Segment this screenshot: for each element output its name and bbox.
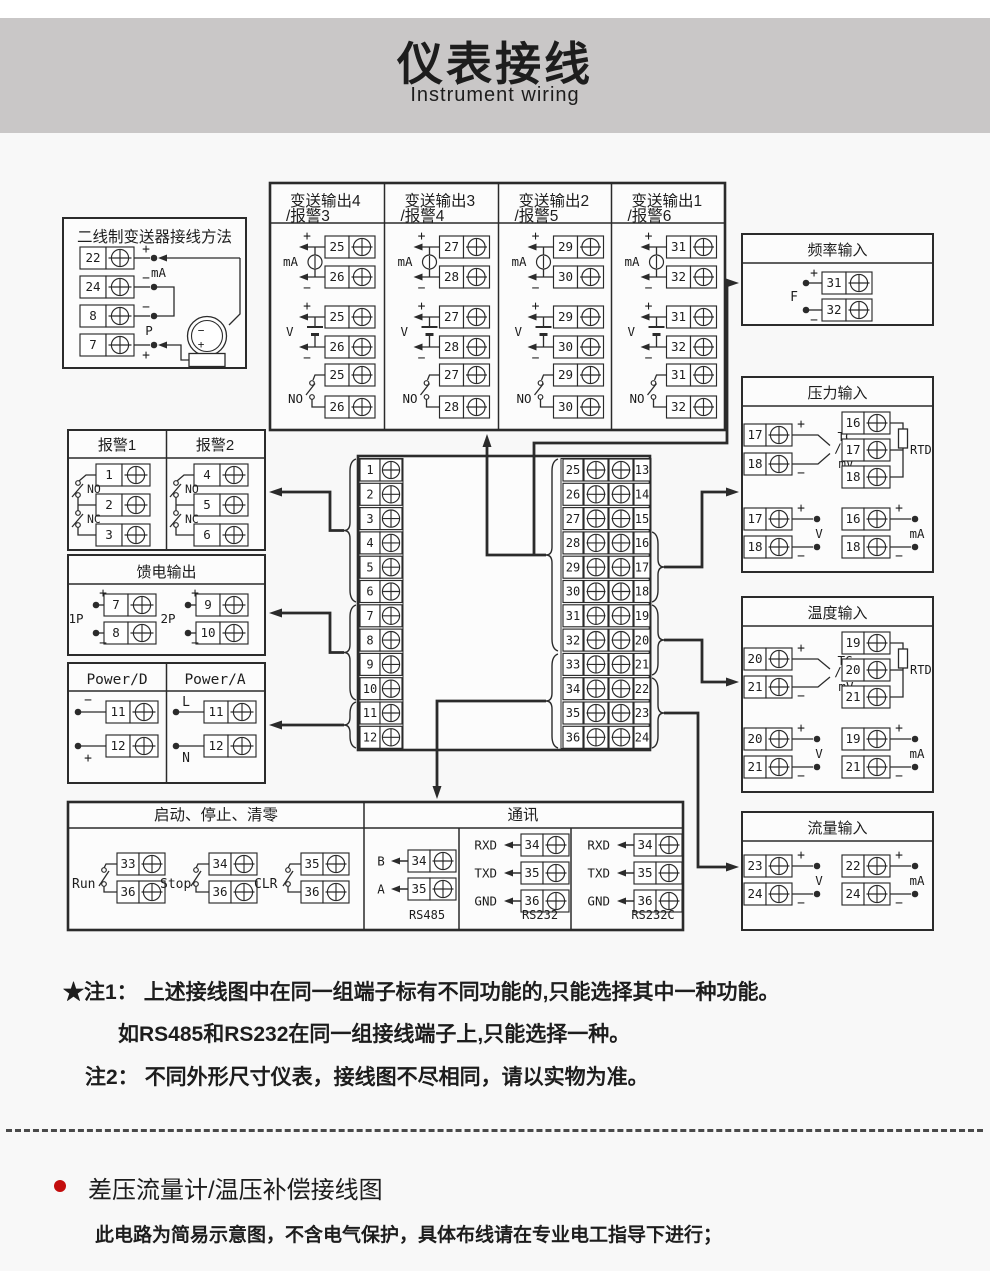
terminal-number: 28 (444, 399, 459, 414)
screw-terminal-icon (380, 629, 402, 651)
label: − (198, 324, 205, 337)
screw-terminal-icon (584, 556, 608, 578)
terminal-number: 30 (558, 269, 573, 284)
label: − (418, 281, 426, 296)
terminal-number: 6 (366, 585, 373, 599)
terminal-number: 7 (366, 609, 373, 623)
screw-terminal-icon (584, 605, 608, 627)
terminal-number: 20 (747, 731, 762, 746)
screw-terminal-icon (609, 483, 633, 505)
label: − (895, 549, 903, 564)
label: RS232C (631, 908, 674, 922)
terminal-number: 25 (329, 239, 344, 254)
screw-terminal-icon (609, 508, 633, 530)
screw-terminal-icon (864, 439, 890, 461)
terminal-number: 12 (363, 731, 377, 745)
screw-terminal-icon (349, 266, 375, 288)
label: NO (517, 391, 532, 406)
terminal-number: 18 (845, 469, 860, 484)
terminal-number: 31 (566, 609, 580, 623)
label: + (797, 721, 805, 736)
label: Stop (160, 877, 191, 892)
terminal-number: 36 (212, 884, 227, 899)
terminal-number: 5 (366, 560, 373, 574)
terminal-number: 17 (747, 511, 762, 526)
screw-terminal-icon (380, 483, 402, 505)
label: RS485 (409, 908, 445, 922)
center-terminal-block: 1251322614327154281652917630187311983220… (358, 456, 651, 750)
screw-terminal-icon (543, 862, 569, 884)
screw-terminal-icon (220, 464, 248, 486)
label: V (401, 324, 409, 339)
label: mA (909, 746, 925, 761)
screw-terminal-icon (691, 396, 717, 418)
screw-terminal-icon (609, 459, 633, 481)
screw-terminal-icon (543, 834, 569, 856)
label: Run (72, 877, 95, 892)
terminal-number: 7 (112, 597, 120, 612)
terminal-number: 26 (329, 399, 344, 414)
terminal-number: 32 (671, 339, 686, 354)
terminal-number: 36 (120, 884, 135, 899)
terminal-number: 2 (366, 488, 373, 502)
terminal-number: 10 (200, 625, 215, 640)
screw-terminal-icon (380, 678, 402, 700)
terminal-number: 34 (637, 837, 652, 852)
terminal-number: 26 (329, 339, 344, 354)
screw-terminal-icon (380, 581, 402, 603)
screw-terminal-icon (430, 878, 456, 900)
box-title: 通讯 (507, 806, 538, 824)
screw-terminal-icon (766, 883, 792, 905)
screw-terminal-icon (864, 466, 890, 488)
screw-terminal-icon (766, 424, 792, 446)
screw-terminal-icon (464, 336, 490, 358)
screw-terminal-icon (584, 508, 608, 530)
note-1-text-2: 如RS485和RS232在同一组接线端子上,只能选择一种。 (118, 1023, 630, 1046)
label: − (810, 313, 818, 328)
group-brace (652, 605, 664, 675)
label: + (418, 299, 426, 314)
arrow-head-icon (433, 786, 442, 799)
label: + (645, 299, 653, 314)
label: − (895, 896, 903, 911)
terminal-number: 25 (329, 367, 344, 382)
label: − (303, 281, 311, 296)
terminal-number: 24 (635, 731, 649, 745)
terminal-number: 21 (845, 759, 860, 774)
label: NO (288, 391, 303, 406)
temperature-input-box: 温度输入2021+−TC/mV192021RTD2021+−V1921+−mA (742, 597, 933, 792)
screw-terminal-icon (864, 756, 890, 778)
box-title: 压力输入 (807, 385, 867, 402)
terminal-number: 11 (110, 704, 125, 719)
terminal-number: 20 (635, 633, 649, 647)
terminal-number: 21 (747, 759, 762, 774)
screw-terminal-icon (380, 605, 402, 627)
terminal-number: 28 (444, 269, 459, 284)
screw-terminal-icon (349, 364, 375, 386)
terminal-number: 27 (444, 239, 459, 254)
label: V (628, 324, 636, 339)
label: GND (587, 894, 610, 909)
terminal-number: 28 (444, 339, 459, 354)
terminal-number: 34 (566, 682, 580, 696)
screw-terminal-icon (766, 453, 792, 475)
terminal-number: 36 (524, 893, 539, 908)
label: + (191, 586, 199, 601)
arrow-head-icon (726, 863, 739, 872)
screw-terminal-icon (864, 508, 890, 530)
label: B (377, 854, 385, 869)
screw-terminal-icon (609, 678, 633, 700)
label: + (532, 299, 540, 314)
label: + (797, 417, 805, 432)
terminal-number: 32 (671, 399, 686, 414)
terminal-number: 24 (845, 886, 860, 901)
label: F (790, 290, 798, 305)
screw-terminal-icon (609, 581, 633, 603)
label: + (895, 848, 903, 863)
label: TXD (587, 866, 610, 881)
frequency-input-box: 频率输入3132+−F (742, 234, 933, 328)
label: V (515, 324, 523, 339)
terminal-number: 20 (747, 651, 762, 666)
terminal-number: 35 (304, 856, 319, 871)
arrow-head-icon (269, 721, 282, 730)
terminal-number: 29 (558, 309, 573, 324)
group-brace (344, 702, 356, 748)
label: CLR (254, 877, 278, 892)
terminal-number: 3 (105, 527, 113, 542)
label: + (645, 229, 653, 244)
screw-terminal-icon (864, 883, 890, 905)
screw-terminal-icon (691, 364, 717, 386)
screw-terminal-icon (766, 855, 792, 877)
terminal-number: 16 (845, 511, 860, 526)
terminal-number: 9 (366, 658, 373, 672)
label: − (895, 769, 903, 784)
screw-terminal-icon (584, 678, 608, 700)
label: / (834, 441, 842, 456)
screw-terminal-icon (584, 483, 608, 505)
terminal-number: 2 (105, 497, 113, 512)
terminal-number: 14 (635, 488, 649, 502)
box-title: 报警2 (196, 437, 234, 454)
screw-terminal-icon (656, 862, 682, 884)
screw-terminal-icon (323, 881, 349, 903)
label: mA (151, 265, 167, 280)
arrow-head-icon (483, 434, 492, 447)
label: mA (909, 873, 925, 888)
label: N (182, 751, 190, 766)
screw-terminal-icon (578, 306, 604, 328)
terminal-number: 9 (204, 597, 212, 612)
flow-input-box: 流量输入2324+−V2224+−mA (742, 812, 933, 930)
alarm-box: 报警1报警2123NONC456NONC (68, 430, 265, 550)
label: + (797, 641, 805, 656)
label: − (418, 351, 426, 366)
screw-terminal-icon (578, 236, 604, 258)
label: RXD (587, 838, 610, 853)
column-title: /报警6 (628, 207, 672, 225)
screw-terminal-icon (220, 494, 248, 516)
screw-terminal-icon (380, 653, 402, 675)
terminal-number: 21 (635, 658, 649, 672)
terminal-number: 31 (671, 367, 686, 382)
screw-terminal-icon (766, 508, 792, 530)
screw-terminal-icon (380, 702, 402, 724)
power-box: Power/DPower/A1112−+1112LN (68, 663, 265, 783)
screw-terminal-icon (846, 272, 872, 294)
arrow-head-icon (269, 609, 282, 618)
screw-terminal-icon (349, 236, 375, 258)
terminal-number: 6 (203, 527, 211, 542)
screw-terminal-icon (656, 834, 682, 856)
screw-terminal-icon (609, 629, 633, 651)
terminal-number: 13 (635, 463, 649, 477)
box-title: 频率输入 (807, 242, 867, 259)
label: V (815, 526, 823, 541)
label: V (286, 324, 294, 339)
screw-terminal-icon (464, 364, 490, 386)
label: mA (512, 254, 528, 269)
box-title: Power/D (86, 672, 147, 688)
screw-terminal-icon (349, 396, 375, 418)
label: P (145, 323, 153, 338)
note-1-line-2: 如RS485和RS232在同一组接线端子上,只能选择一种。 (118, 1018, 630, 1048)
label: NO (87, 482, 101, 496)
screw-terminal-icon (691, 266, 717, 288)
screw-terminal-icon (584, 653, 608, 675)
terminal-number: 24 (85, 279, 100, 294)
label: − (532, 281, 540, 296)
terminal-number: 21 (845, 689, 860, 704)
terminal-number: 1 (105, 467, 113, 482)
screw-terminal-icon (864, 536, 890, 558)
screw-terminal-icon (864, 412, 890, 434)
note-1-head: ★注1： (63, 981, 138, 1004)
label: + (84, 751, 92, 766)
terminal-number: 32 (671, 269, 686, 284)
terminal-number: 30 (558, 399, 573, 414)
terminal-number: 25 (566, 463, 580, 477)
label: + (198, 338, 205, 351)
terminal-number: 29 (566, 560, 580, 574)
screw-terminal-icon (609, 726, 633, 748)
label: + (895, 721, 903, 736)
screw-terminal-icon (464, 266, 490, 288)
terminal-number: 31 (826, 275, 841, 290)
screw-terminal-icon (122, 524, 150, 546)
screw-terminal-icon (864, 728, 890, 750)
group-brace (344, 605, 356, 700)
box-title: Power/A (184, 672, 245, 688)
column-title: /报警3 (286, 207, 330, 225)
screw-terminal-icon (578, 364, 604, 386)
label: V (815, 746, 823, 761)
terminal-number: 3 (366, 512, 373, 526)
terminal-number: 36 (637, 893, 652, 908)
label: − (191, 636, 199, 651)
terminal-number: 26 (566, 488, 580, 502)
transmitter-icon: −+ (188, 317, 227, 367)
terminal-number: 33 (120, 856, 135, 871)
label: + (142, 242, 150, 257)
screw-terminal-icon (609, 653, 633, 675)
terminal-number: 18 (845, 539, 860, 554)
terminal-number: 32 (826, 302, 841, 317)
label: + (99, 586, 107, 601)
terminal-number: 22 (85, 250, 100, 265)
terminal-number: 19 (845, 731, 860, 746)
terminal-number: 32 (566, 633, 580, 647)
label: mA (283, 254, 299, 269)
two-wire-transmitter-box: 二线制变送器接线方法222487+mA−−P+−+ (63, 218, 246, 368)
screw-terminal-icon (323, 853, 349, 875)
terminal-number: 11 (363, 706, 377, 720)
screw-terminal-icon (609, 702, 633, 724)
label: RS232 (522, 908, 558, 922)
label: − (797, 689, 805, 704)
screw-terminal-icon (130, 735, 158, 757)
terminal-number: 28 (566, 536, 580, 550)
screw-terminal-icon (464, 236, 490, 258)
screw-terminal-icon (766, 676, 792, 698)
terminal-number: 17 (747, 427, 762, 442)
terminal-number: 19 (845, 635, 860, 650)
terminal-number: 8 (366, 633, 373, 647)
terminal-number: 26 (329, 269, 344, 284)
terminal-number: 27 (566, 512, 580, 526)
box-title: 启动、停止、清零 (154, 806, 279, 824)
note-2-line: 注2：不同外形尺寸仪表，接线图不尽相同，请以实物为准。 (85, 1061, 649, 1091)
label: / (834, 664, 842, 679)
label: − (645, 281, 653, 296)
label: − (797, 896, 805, 911)
label: + (810, 266, 818, 281)
screw-terminal-icon (584, 532, 608, 554)
terminal-number: 23 (747, 858, 762, 873)
label: − (797, 466, 805, 481)
screw-terminal-icon (228, 701, 256, 723)
label: NO (630, 391, 645, 406)
label: RXD (474, 838, 497, 853)
terminal-number: 34 (524, 837, 539, 852)
terminal-number: 27 (444, 367, 459, 382)
label: + (303, 299, 311, 314)
terminal-number: 18 (747, 456, 762, 471)
terminal-number: 17 (635, 560, 649, 574)
label: − (84, 693, 92, 708)
screw-terminal-icon (766, 756, 792, 778)
terminal-number: 8 (112, 625, 120, 640)
screw-terminal-icon (766, 536, 792, 558)
screw-terminal-icon (864, 659, 890, 681)
screw-terminal-icon (766, 728, 792, 750)
note-2-text: 不同外形尺寸仪表，接线图不尽相同，请以实物为准。 (145, 1066, 649, 1089)
screw-terminal-icon (380, 726, 402, 748)
screw-terminal-icon (220, 594, 248, 616)
screw-terminal-icon (349, 336, 375, 358)
arrow-head-icon (726, 279, 739, 288)
terminal-number: 18 (747, 539, 762, 554)
box-title: 报警1 (98, 437, 136, 454)
screw-terminal-icon (464, 396, 490, 418)
screw-terminal-icon (864, 632, 890, 654)
page: 仪表接线 Instrument wiring 二线制变送器接线方法222487+… (0, 0, 990, 1271)
terminal-number: 19 (635, 609, 649, 623)
terminal-number: 4 (366, 536, 373, 550)
label: 2P (160, 611, 175, 626)
label: + (532, 229, 540, 244)
screw-terminal-icon (609, 532, 633, 554)
label: mA (398, 254, 414, 269)
terminal-number: 10 (363, 682, 377, 696)
screw-terminal-icon (231, 853, 257, 875)
pressure-input-box: 压力输入1718+−TC/mV161718RTD1718+−V1618+−mA (742, 377, 933, 572)
label: RTD (910, 663, 932, 677)
terminal-number: 34 (411, 853, 426, 868)
screw-terminal-icon (578, 266, 604, 288)
screw-terminal-icon (349, 306, 375, 328)
note-1-line-1: ★注1：上述接线图中在同一组端子标有不同功能的,只能选择其中一种功能。 (63, 976, 780, 1006)
label: + (303, 229, 311, 244)
label: NC (87, 512, 101, 526)
note-1-text: 上述接线图中在同一组端子标有不同功能的,只能选择其中一种功能。 (144, 981, 780, 1004)
label: L (182, 695, 190, 710)
screw-terminal-icon (106, 247, 134, 269)
label: − (303, 351, 311, 366)
label: + (797, 501, 805, 516)
arrow-head-icon (726, 678, 739, 687)
screw-terminal-icon (846, 299, 872, 321)
terminal-number: 34 (212, 856, 227, 871)
terminal-number: 12 (208, 738, 223, 753)
screw-terminal-icon (380, 556, 402, 578)
screw-terminal-icon (122, 464, 150, 486)
label: NC (185, 512, 199, 526)
terminal-number: 30 (566, 585, 580, 599)
screw-terminal-icon (106, 305, 134, 327)
terminal-number: 15 (635, 512, 649, 526)
screw-terminal-icon (106, 276, 134, 298)
terminal-number: 16 (635, 536, 649, 550)
screw-terminal-icon (130, 701, 158, 723)
terminal-number: 11 (208, 704, 223, 719)
terminal-number: 24 (747, 886, 762, 901)
terminal-number: 36 (566, 731, 580, 745)
control-comm-box: 启动、停止、清零通讯3336Run3436Stop3536CLRB34A35RS… (68, 802, 683, 930)
footer-heading: 差压流量计/温压补偿接线图 (88, 1170, 383, 1205)
label: − (142, 271, 150, 286)
note-2-head: 注2： (85, 1066, 139, 1089)
screw-terminal-icon (691, 236, 717, 258)
screw-terminal-icon (106, 334, 134, 356)
screw-terminal-icon (864, 686, 890, 708)
terminal-number: 22 (845, 858, 860, 873)
column-title: /报警4 (401, 207, 445, 225)
column-title: /报警5 (515, 207, 559, 225)
terminal-number: 22 (635, 682, 649, 696)
terminal-number: 4 (203, 467, 211, 482)
screw-terminal-icon (584, 581, 608, 603)
group-brace (652, 532, 664, 602)
terminal-number: 17 (845, 442, 860, 457)
terminal-number: 35 (411, 881, 426, 896)
label: V (815, 873, 823, 888)
label: + (895, 501, 903, 516)
